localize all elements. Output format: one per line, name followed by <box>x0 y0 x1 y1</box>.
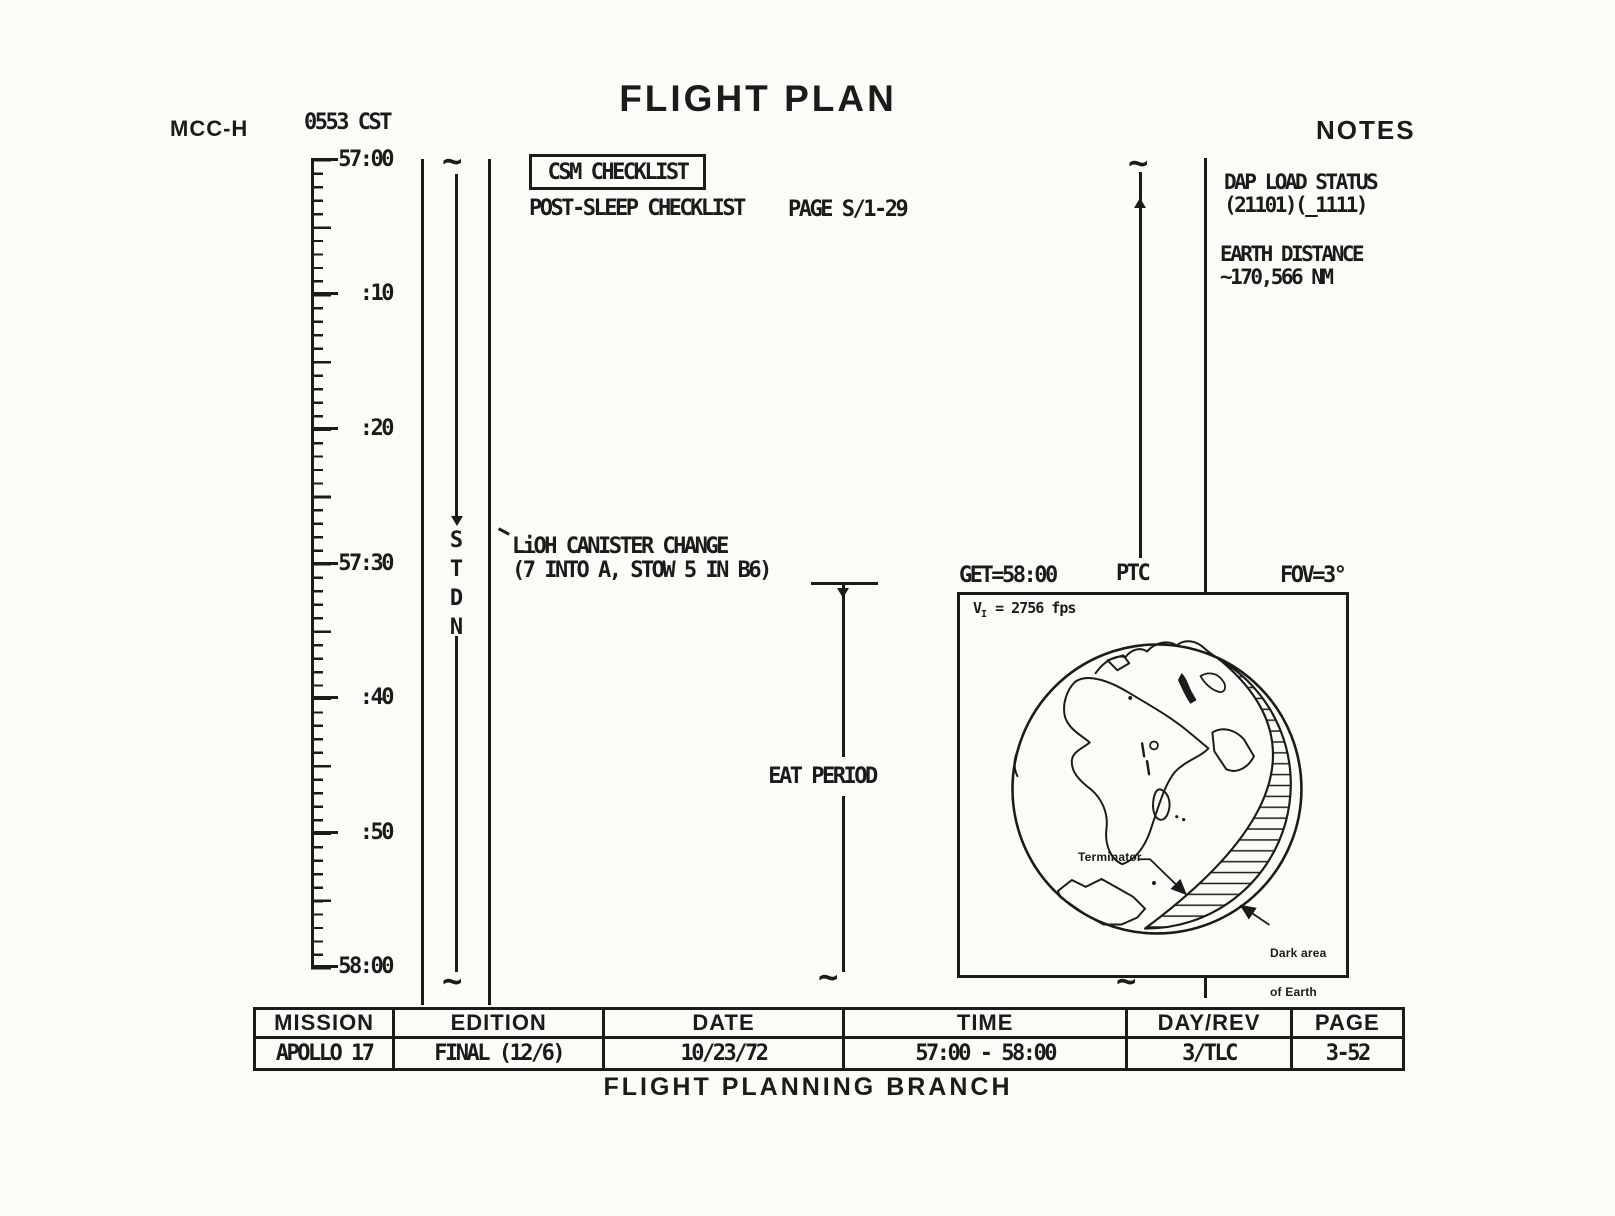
notes-column-divider <box>1204 158 1207 594</box>
earth-view-box: VI = 2756 fps Terminator Dark area of Ea… <box>957 592 1349 978</box>
table-value-dayrev: 3/TLC <box>1128 1039 1292 1068</box>
timeline-tick-label: :40 <box>330 685 392 710</box>
table-value-edition: FINAL (12/6) <box>395 1039 605 1068</box>
down-arrowhead <box>451 516 463 526</box>
cst-time-label: 0553 CST <box>304 110 390 135</box>
column-divider-right <box>488 159 491 1005</box>
mcc-h-label: MCC-H <box>170 116 248 142</box>
table-value-time: 57:00 - 58:00 <box>845 1039 1129 1068</box>
ptc-label: PTC <box>1116 561 1148 586</box>
table-header-page: PAGE <box>1293 1010 1402 1039</box>
table-header-mission: MISSION <box>256 1010 395 1039</box>
csm-checklist-box: CSM CHECKLIST <box>529 154 706 190</box>
dap-load-status-line2: (21101)(_1111) <box>1224 193 1366 217</box>
timeline-tick-label: 58:00 <box>330 954 392 979</box>
get-label: GET=58:00 <box>959 563 1056 588</box>
velocity-value: = 2756 fps <box>987 599 1075 617</box>
dark-area-line2: of Earth <box>1270 986 1327 999</box>
table-header-edition: EDITION <box>395 1010 605 1039</box>
table-value-date: 10/23/72 <box>605 1039 845 1068</box>
stdn-label: STDN <box>444 528 468 644</box>
notes-header: NOTES <box>1316 115 1416 146</box>
timeline-tick-label: 57:00 <box>330 147 392 172</box>
eat-period-start-bar <box>811 582 878 585</box>
timeline-tick-label: 57:30 <box>330 551 392 576</box>
terminator-arrow <box>1139 859 1186 894</box>
dark-area-arrow <box>1241 906 1269 925</box>
post-sleep-page-ref: PAGE S/1-29 <box>788 197 906 222</box>
earth-globe <box>960 595 1346 975</box>
earth-distance-line2: ~170,566 NM <box>1220 265 1332 289</box>
page-title: FLIGHT PLAN <box>558 78 958 120</box>
stdn-coverage-line-upper <box>455 174 458 518</box>
terminator-label: Terminator <box>1078 851 1142 864</box>
lioh-note-line1: LiOH CANISTER CHANGE <box>512 534 727 559</box>
dap-load-status-line1: DAP LOAD STATUS <box>1224 170 1376 194</box>
table-value-page: 3-52 <box>1293 1039 1402 1068</box>
lioh-connector-mark <box>498 527 510 535</box>
fov-label: FOV=3° <box>1280 563 1344 588</box>
csm-checklist-label: CSM CHECKLIST <box>548 160 688 185</box>
timeline-tick-label: :50 <box>330 820 392 845</box>
ptc-coverage-line <box>1139 172 1142 558</box>
stdn-coverage-line-lower <box>455 636 458 972</box>
table-header-date: DATE <box>605 1010 845 1039</box>
timeline-tick-label: :10 <box>330 281 392 306</box>
flight-plan-page: MCC-H 0553 CST FLIGHT PLAN NOTES 57:00 :… <box>0 0 1615 1216</box>
continuation-mark: ~ <box>818 962 838 992</box>
continuation-mark: ~ <box>442 966 462 996</box>
table-header-time: TIME <box>845 1010 1129 1039</box>
earth-distance-line1: EARTH DISTANCE <box>1220 242 1362 266</box>
eat-period-line-lower <box>842 796 845 972</box>
velocity-symbol: V <box>973 599 981 617</box>
velocity-label: VI = 2756 fps <box>973 602 1075 621</box>
up-arrowhead <box>1134 198 1146 208</box>
timeline-tick-label: :20 <box>330 416 392 441</box>
eat-period-line-upper <box>842 585 845 757</box>
table-value-mission: APOLLO 17 <box>256 1039 395 1068</box>
post-sleep-checklist-label: POST-SLEEP CHECKLIST <box>529 196 744 221</box>
column-divider-left <box>421 159 424 1005</box>
eat-period-label: EAT PERIOD <box>752 764 892 789</box>
lioh-note-line2: (7 INTO A, STOW 5 IN B6) <box>512 558 770 583</box>
dark-area-line1: Dark area <box>1270 947 1327 960</box>
flight-planning-branch-label: FLIGHT PLANNING BRANCH <box>558 1073 1058 1102</box>
table-header-dayrev: DAY/REV <box>1128 1010 1292 1039</box>
continuation-mark: ~ <box>442 146 462 176</box>
notes-column-divider-lower <box>1204 978 1207 998</box>
mission-data-table: MISSION EDITION DATE TIME DAY/REV PAGE A… <box>253 1007 1405 1071</box>
